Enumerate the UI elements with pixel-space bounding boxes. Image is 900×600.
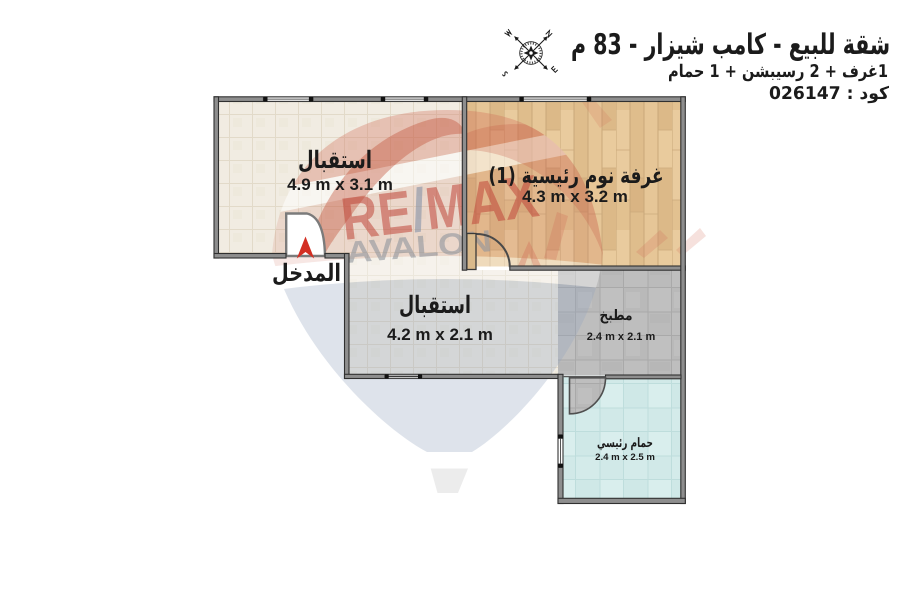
- svg-text:2.4 m x 2.5 m: 2.4 m x 2.5 m: [595, 452, 655, 463]
- svg-text:4.9 m x 3.1 m: 4.9 m x 3.1 m: [287, 175, 393, 194]
- svg-text:2.4 m x 2.1 m: 2.4 m x 2.1 m: [587, 331, 656, 343]
- svg-text:4.3 m x 3.2 m: 4.3 m x 3.2 m: [522, 187, 628, 206]
- svg-text:4.2 m x 2.1 m: 4.2 m x 2.1 m: [387, 325, 493, 344]
